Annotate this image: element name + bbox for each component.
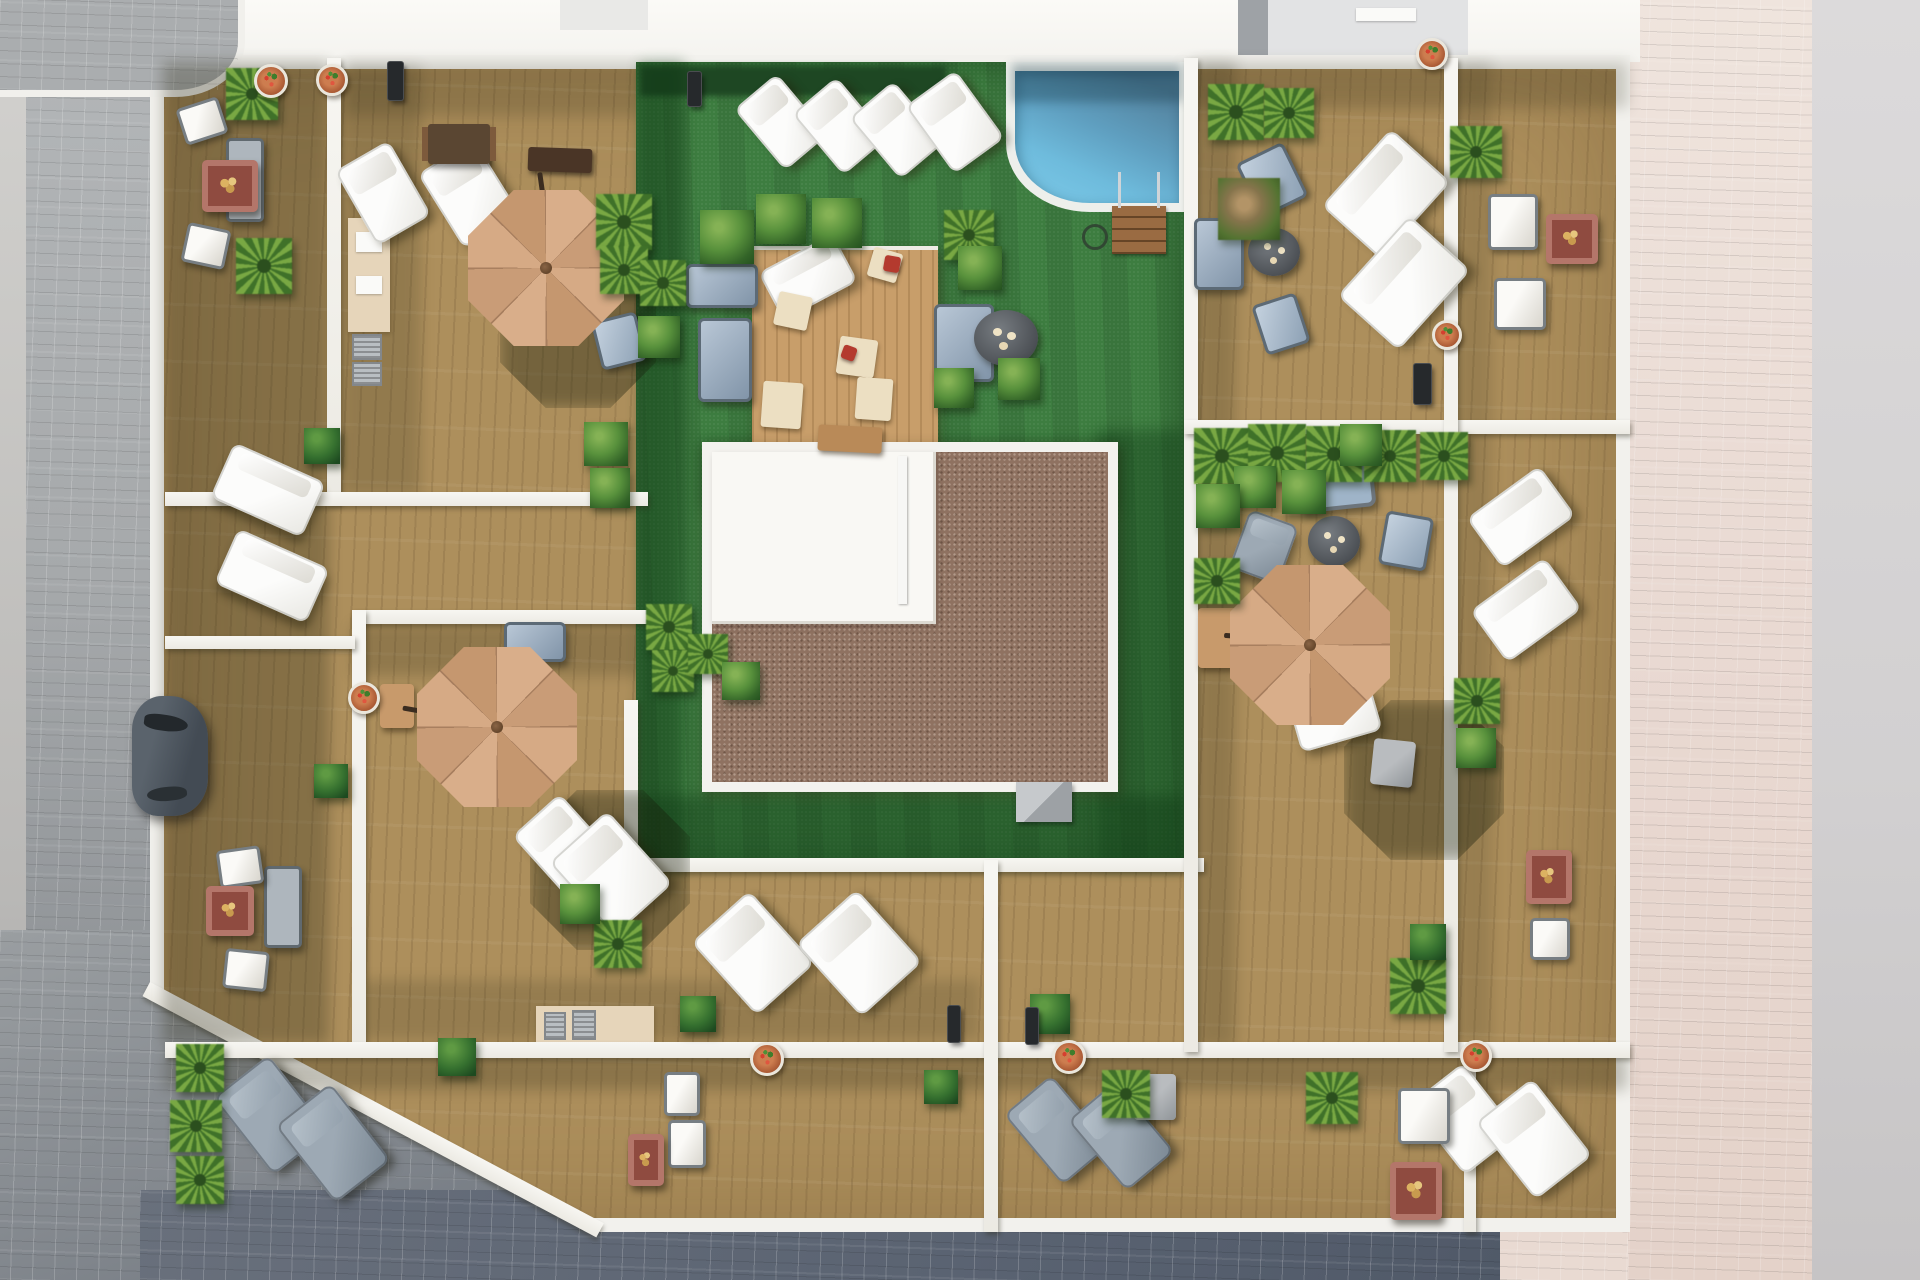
chair-white (1494, 278, 1546, 330)
mount (528, 147, 593, 173)
topiary (1410, 924, 1446, 960)
topiary (924, 1070, 958, 1104)
topiary (304, 428, 340, 464)
street-right-pink (1628, 0, 1818, 1280)
topiary (438, 1038, 476, 1076)
cushion (760, 381, 803, 430)
cushion-red (883, 255, 902, 274)
palm (176, 1044, 224, 1092)
pot (1052, 1040, 1086, 1074)
lawn-border (624, 858, 1204, 872)
pot (348, 682, 380, 714)
palm (236, 238, 292, 294)
palm (1420, 432, 1468, 480)
pot (1460, 1040, 1492, 1072)
bush (958, 246, 1002, 290)
lamp (1026, 1008, 1038, 1044)
lamp (388, 62, 403, 100)
bush (722, 662, 760, 700)
palm (594, 920, 642, 968)
vent-unit (572, 1010, 596, 1040)
parasol-east (1230, 565, 1390, 725)
lamp (688, 72, 701, 106)
chair-white (1398, 1088, 1450, 1144)
parked-car (132, 696, 208, 816)
palm (1454, 678, 1500, 724)
cushion (773, 291, 813, 331)
chair-white (1530, 918, 1570, 960)
pool-hose (1082, 224, 1108, 250)
divider-wall (165, 1042, 1630, 1058)
armchair-blue (1378, 510, 1435, 572)
fire-table (206, 886, 254, 936)
divider-wall (165, 636, 355, 649)
fire-table (202, 160, 258, 212)
bush (1234, 466, 1276, 508)
bush (1282, 470, 1326, 514)
pool-steps (1112, 206, 1166, 254)
pot (750, 1042, 784, 1076)
utility-box (1016, 782, 1072, 822)
palm (1390, 958, 1446, 1014)
palm (176, 1156, 224, 1204)
chair-white (216, 845, 265, 889)
vent-unit (544, 1012, 566, 1040)
twig (1218, 178, 1280, 240)
divider-wall (352, 610, 366, 1050)
bush (812, 198, 862, 248)
palm (1208, 84, 1264, 140)
vent-unit (352, 334, 382, 360)
palm (1306, 1072, 1358, 1124)
bush (934, 368, 974, 408)
bench-set (428, 124, 490, 164)
topiary (680, 996, 716, 1032)
divider-wall (1184, 58, 1198, 1052)
chair-white (1488, 194, 1538, 250)
bush (1456, 728, 1496, 768)
roof-pipe (898, 456, 907, 604)
fire-table (1390, 1162, 1442, 1220)
palm (646, 604, 692, 650)
fire-table (1546, 214, 1598, 264)
sofa-blue (698, 318, 752, 402)
palm (1450, 126, 1502, 178)
pool-sh (1012, 64, 1182, 102)
pot (316, 64, 348, 96)
pot (1432, 320, 1462, 350)
vent-unit (352, 362, 382, 386)
lamp (948, 1006, 960, 1042)
round-table (1308, 516, 1360, 566)
palm (170, 1100, 222, 1152)
chair-white (222, 948, 270, 992)
fire-table (1526, 850, 1572, 904)
palm (640, 260, 686, 306)
bush (584, 422, 628, 466)
ottoman-gray (1370, 738, 1417, 788)
sofa-blue (686, 264, 758, 308)
pot (1416, 38, 1448, 70)
pot (254, 64, 288, 98)
divider-wall (1444, 58, 1458, 1052)
parasol-west (417, 647, 577, 807)
bush (638, 316, 680, 358)
sidewalk-right (1812, 0, 1920, 1280)
topiary (314, 764, 348, 798)
shade (1456, 62, 1492, 1042)
rooftop-aerial-render (0, 0, 1920, 1280)
bush (700, 210, 754, 264)
divider-wall (352, 610, 652, 624)
roof-railing (1356, 8, 1416, 21)
sofa-gray (264, 866, 302, 948)
palm (1264, 88, 1314, 138)
bush (1340, 424, 1382, 466)
divider-wall (984, 860, 998, 1232)
chair-white (668, 1120, 706, 1168)
rail (356, 276, 382, 294)
palm (1102, 1070, 1150, 1118)
bush (998, 358, 1040, 400)
fire-table (628, 1134, 664, 1186)
shade (165, 1054, 1627, 1090)
chair-white (664, 1072, 700, 1116)
bush (590, 468, 630, 508)
lamp (1414, 364, 1431, 404)
cushion (855, 377, 894, 421)
bush (560, 884, 600, 924)
palm (596, 194, 652, 250)
palm (1194, 558, 1240, 604)
bush (1196, 484, 1240, 528)
roof-patch-top-left (560, 0, 648, 30)
bench-wood (817, 424, 882, 453)
gshade (640, 62, 684, 870)
bush (756, 194, 806, 244)
